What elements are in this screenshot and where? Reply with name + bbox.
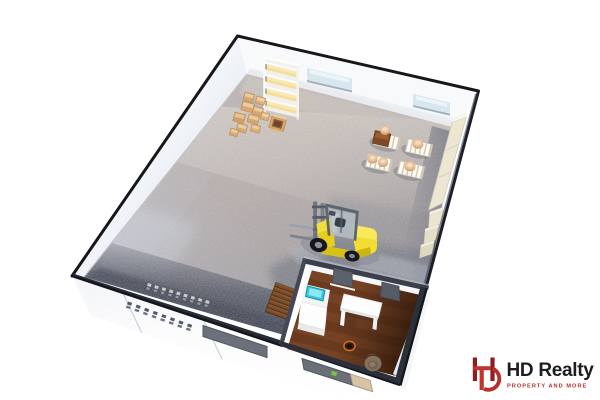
svg-text:HD Realty: HD Realty bbox=[507, 360, 595, 381]
svg-text:PROPERTY AND MORE: PROPERTY AND MORE bbox=[507, 383, 587, 389]
